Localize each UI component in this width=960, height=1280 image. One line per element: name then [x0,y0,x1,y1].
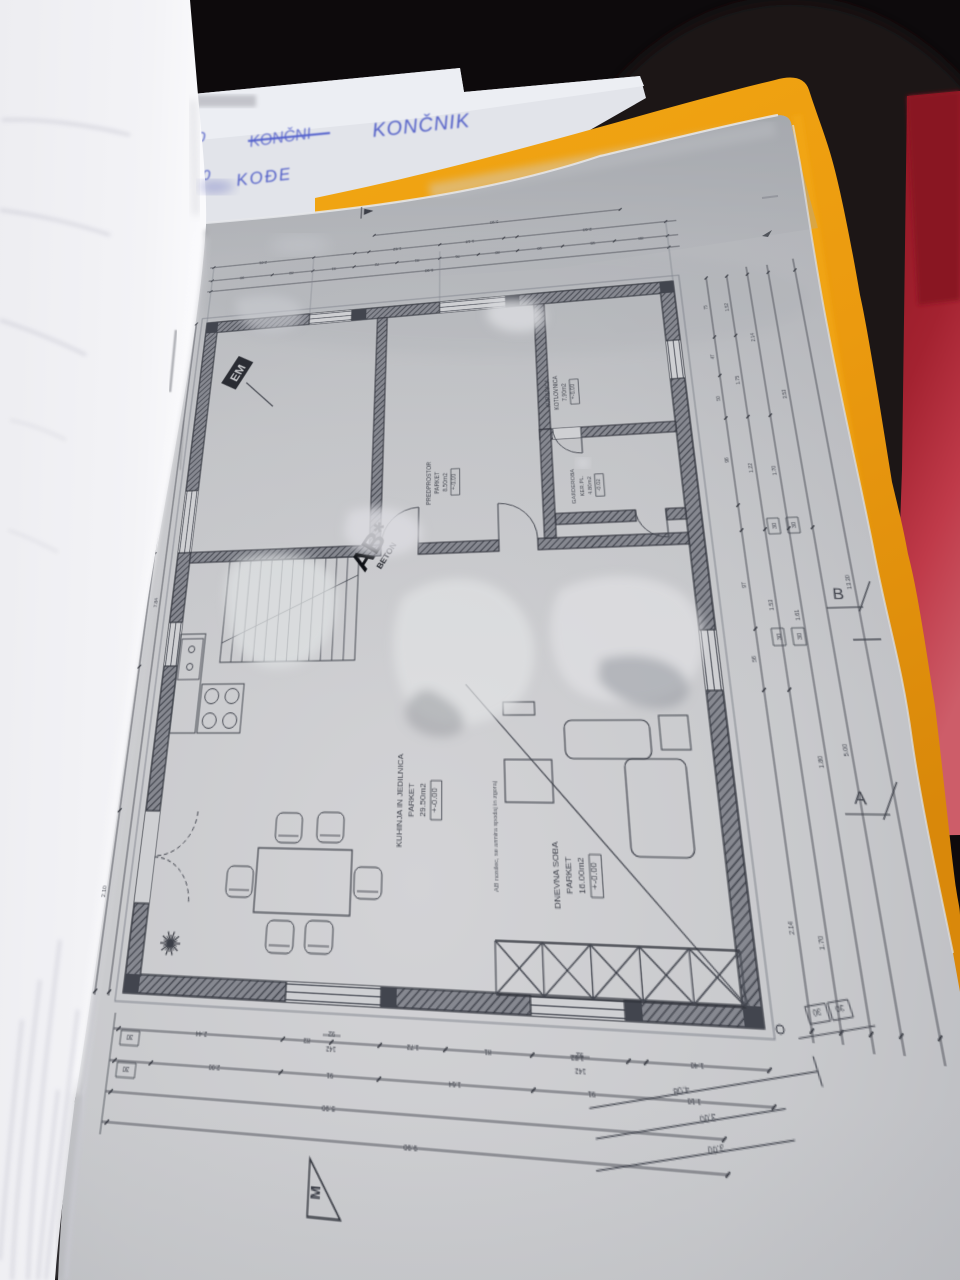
svg-text:2.60: 2.60 [582,226,592,231]
svg-text:GARDEROBA: GARDEROBA [569,468,577,503]
svg-text:1.64: 1.64 [448,1078,461,1088]
svg-text:3.00: 3.00 [705,1142,726,1158]
svg-text:1.72: 1.72 [407,1041,420,1051]
svg-text:2.44: 2.44 [195,1028,207,1037]
svg-text:KUHINJA IN JEDILNICA: KUHINJA IN JEDILNICA [395,752,405,847]
svg-text:30: 30 [126,1032,134,1041]
svg-text:KOTLOVNICA: KOTLOVNICA [552,375,561,410]
svg-text:PREDPROSTOR: PREDPROSTOR [425,461,433,505]
svg-text:1.53: 1.53 [768,599,777,611]
svg-text:1.52: 1.52 [724,303,731,312]
svg-text:1.70: 1.70 [817,935,828,950]
svg-text:30: 30 [776,633,784,640]
svg-text:97: 97 [741,582,749,588]
svg-text:96: 96 [724,457,731,463]
svg-text:2.14: 2.14 [787,921,797,935]
svg-text:2.10: 2.10 [101,885,109,897]
svg-text:3.00: 3.00 [697,1111,718,1126]
svg-text:1.80: 1.80 [817,755,827,768]
svg-text:92: 92 [328,1029,335,1038]
svg-text:83: 83 [303,1035,310,1044]
svg-text:30: 30 [122,1064,130,1073]
svg-text:81: 81 [484,1046,492,1056]
svg-text:92: 92 [576,1050,584,1060]
svg-text:1.18: 1.18 [465,238,474,243]
svg-text:91: 91 [326,1070,333,1080]
svg-text:75: 75 [703,305,710,310]
svg-text:83: 83 [289,270,294,275]
svg-text:91: 91 [331,266,336,271]
svg-text:1.22: 1.22 [747,463,755,473]
svg-text:16.00m2: 16.00m2 [577,856,588,894]
svg-text:AB nosilec, se armira spodaj i: AB nosilec, se armira spodaj in zgoraj [491,781,500,892]
svg-text:PARKET: PARKET [434,471,441,494]
svg-text:1.40: 1.40 [690,1059,705,1070]
svg-text:4.80m2: 4.80m2 [586,476,594,494]
svg-text:91: 91 [587,1088,595,1098]
svg-text:A: A [853,788,869,809]
svg-text:2.01: 2.01 [259,260,268,265]
svg-text:4.08: 4.08 [671,1084,691,1099]
svg-text:KER.PL.: KER.PL. [578,475,586,496]
svg-text:90: 90 [240,275,245,280]
svg-text:+-0.00: +-0.00 [431,787,440,813]
svg-text:81: 81 [414,257,419,262]
svg-text:1.61: 1.61 [794,609,803,621]
svg-text:7.90m2: 7.90m2 [560,382,569,401]
svg-text:30: 30 [811,1006,822,1017]
svg-text:3.53: 3.53 [781,389,789,399]
svg-text:B: B [832,585,845,602]
svg-text:-0.02: -0.02 [595,479,602,492]
svg-text:5.00: 5.00 [841,743,851,756]
svg-text:80: 80 [495,249,500,254]
svg-text:9.90: 9.90 [403,1141,417,1152]
svg-text:47: 47 [710,354,717,359]
svg-text:95: 95 [590,240,596,245]
svg-text:M: M [310,1185,324,1201]
svg-text:DNEVNA SOBA: DNEVNA SOBA [551,840,563,910]
svg-text:56: 56 [751,655,759,662]
svg-text:7.84: 7.84 [153,598,160,608]
svg-text:30: 30 [791,522,799,529]
svg-text:30: 30 [771,522,779,529]
svg-text:5.90: 5.90 [490,219,499,224]
svg-text:PARKET: PARKET [407,783,416,817]
svg-text:72: 72 [374,261,379,266]
svg-text:76: 76 [455,253,460,258]
svg-text:88: 88 [638,235,644,240]
svg-text:1.70: 1.70 [771,465,779,475]
svg-text:1.62: 1.62 [393,246,402,251]
svg-text:2.00: 2.00 [208,1061,220,1071]
svg-text:90: 90 [537,245,542,250]
svg-text:50: 50 [715,396,722,402]
svg-text:142: 142 [326,1044,337,1054]
svg-text:29.50m2: 29.50m2 [419,782,428,816]
svg-text:1.75: 1.75 [734,375,742,385]
svg-text:2.14: 2.14 [750,333,758,342]
svg-text:9.90: 9.90 [425,267,434,272]
svg-text:142: 142 [574,1066,586,1076]
svg-text:1.10: 1.10 [687,1095,702,1106]
svg-text:5.90: 5.90 [322,1102,336,1112]
svg-text:30: 30 [796,633,804,640]
svg-text:PARKET: PARKET [564,856,575,894]
svg-text:8.50m2: 8.50m2 [442,472,449,492]
svg-text:30: 30 [834,1003,846,1014]
